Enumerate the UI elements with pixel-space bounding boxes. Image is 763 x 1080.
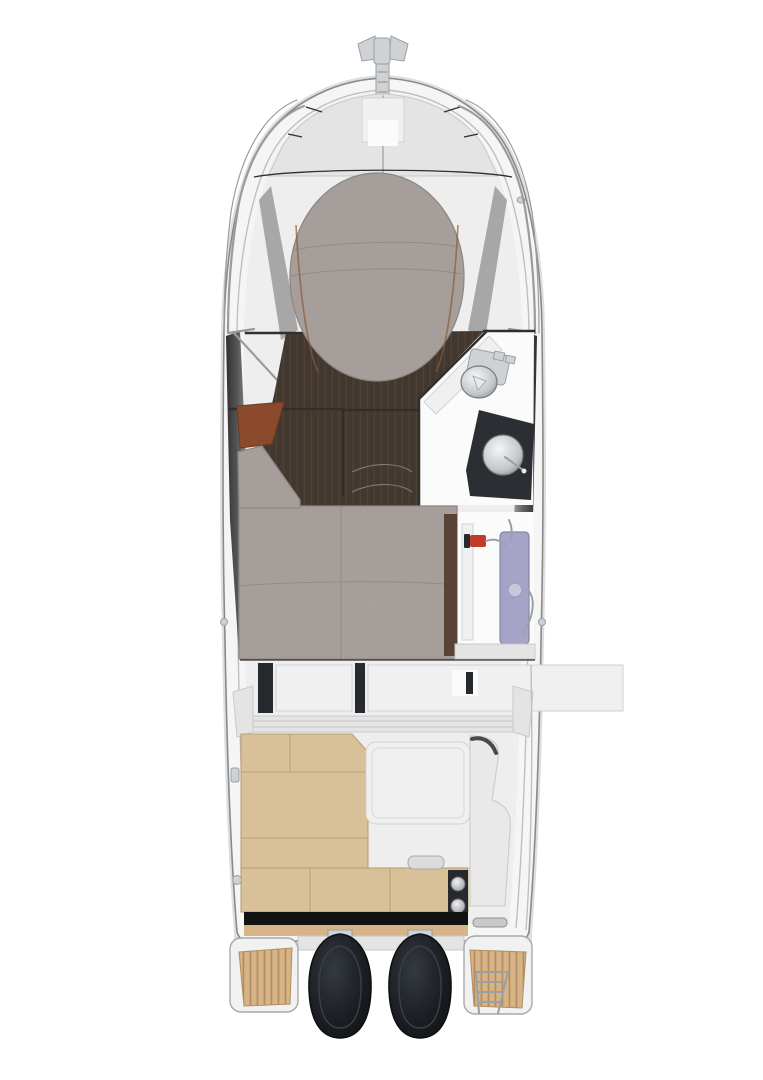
cockpit-step — [243, 716, 529, 732]
berth-step-side — [444, 514, 457, 656]
starboard-swim-platform — [464, 936, 532, 1014]
entry-step — [455, 644, 535, 659]
deck-filler-cap — [451, 877, 465, 891]
l-shaped-settee — [241, 734, 368, 868]
door-porthole — [508, 583, 522, 597]
gunwale-fitting — [233, 876, 242, 885]
aft-bench — [241, 868, 468, 912]
port-swim-platform — [230, 938, 298, 1012]
cockpit-table — [366, 742, 470, 824]
deck-plan-canvas — [0, 0, 763, 1080]
door-frame-right — [355, 663, 365, 713]
starboard-engine — [389, 934, 451, 1038]
boat-deck-plan — [0, 0, 763, 1080]
port-engine — [309, 934, 371, 1038]
sliding-door — [276, 665, 352, 711]
transom-teak-trim — [244, 925, 468, 936]
deck-filler-cap — [451, 899, 465, 913]
bulkhead-window — [452, 670, 478, 696]
port-side-step — [233, 686, 253, 737]
bow-sunpad — [290, 173, 464, 381]
anchor-locker-lid — [368, 120, 398, 146]
starboard-side-step — [513, 686, 533, 737]
port-cleat — [221, 619, 228, 626]
aft-bulkhead-panel — [368, 665, 623, 711]
starboard-cleat — [539, 619, 546, 626]
door-frame-left — [258, 663, 273, 713]
transom-grab-bar — [473, 918, 507, 927]
bench-hatch-handle — [408, 856, 444, 869]
berth-footwell — [343, 410, 419, 507]
transom-panel — [244, 912, 468, 925]
